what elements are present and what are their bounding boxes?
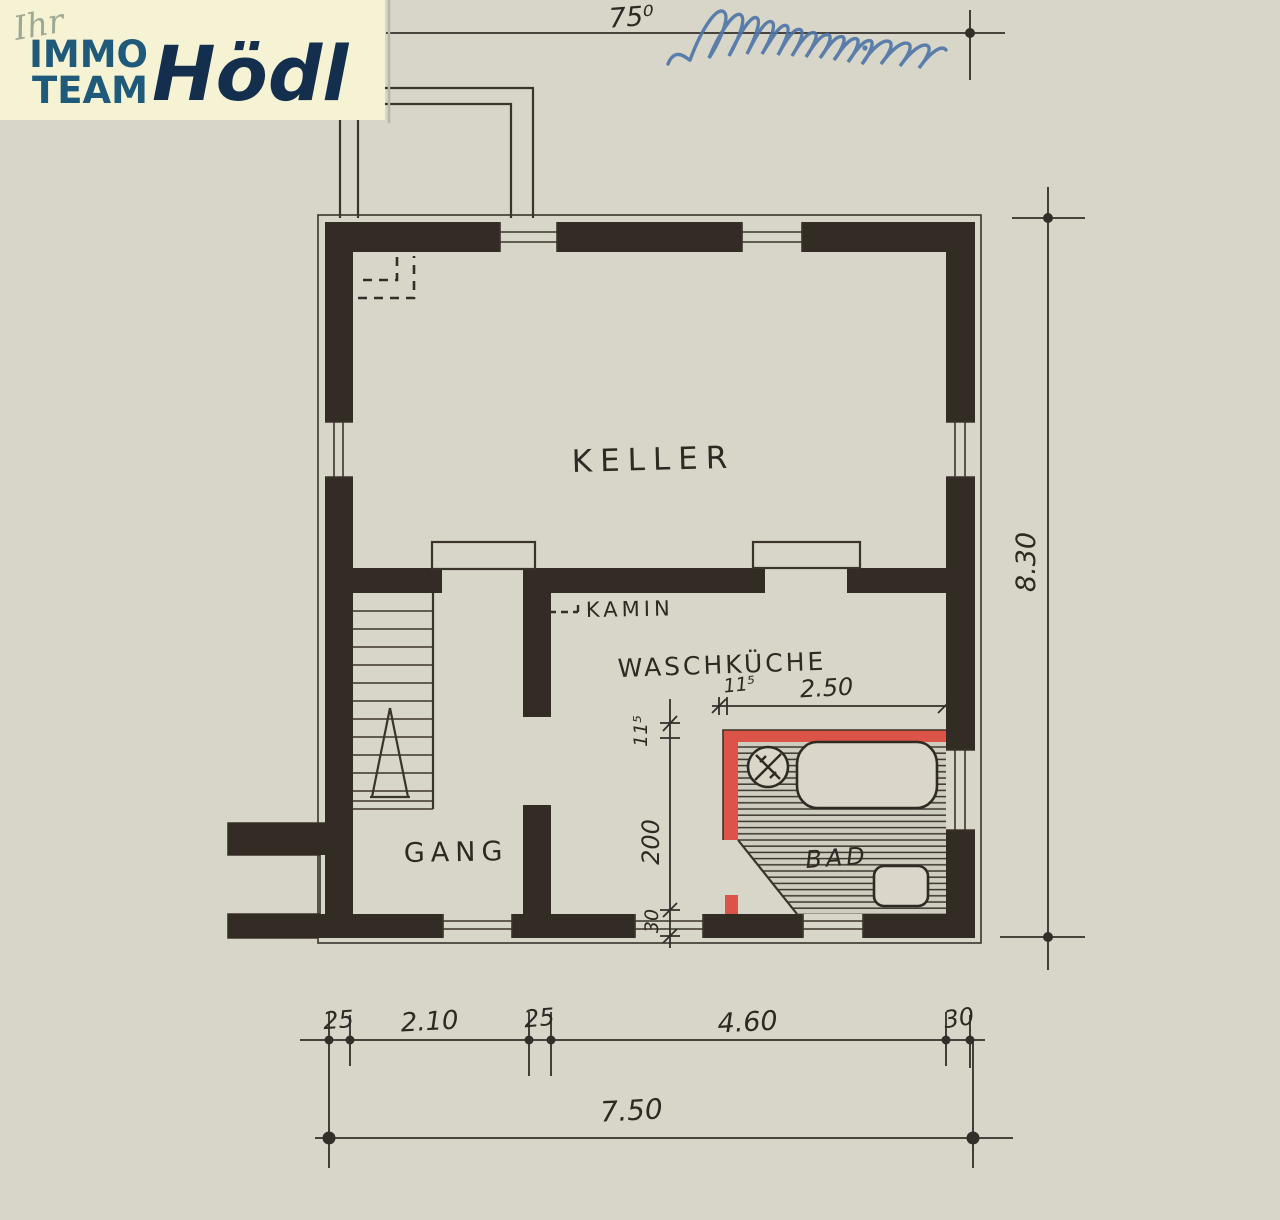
bath-width-dimension-label: 2.50 bbox=[799, 673, 854, 704]
room-label-kamin: KAMIN bbox=[586, 596, 674, 622]
chain-dimension-label: 25 bbox=[322, 1005, 354, 1035]
bath-wall-dimension-label: 11⁵ bbox=[722, 672, 756, 697]
chain-dimension-label: 25 bbox=[523, 1003, 556, 1034]
right-total-dimension-label: 8.30 bbox=[1011, 532, 1042, 592]
logo-line2: TEAM bbox=[32, 69, 148, 112]
exterior-entry-wall-stub bbox=[228, 823, 325, 855]
room-label-keller: KELLER bbox=[571, 440, 735, 480]
bathroom-sink bbox=[874, 866, 928, 906]
interior-wall-segment bbox=[523, 805, 551, 914]
interior-wall-segment bbox=[353, 568, 442, 593]
bathtub bbox=[797, 742, 937, 808]
interior-wall-segment bbox=[847, 568, 946, 593]
bathroom-wall-red-top bbox=[735, 730, 946, 742]
bath-depth-dimension-label: 200 bbox=[637, 819, 665, 865]
bottom-wall-segment bbox=[703, 914, 803, 938]
ink-dot bbox=[862, 45, 867, 50]
bottom-wall-dimension-label: 30 bbox=[641, 909, 663, 933]
right-wall-segment bbox=[946, 222, 975, 422]
bath-wall-vertical-dimension-label: 11⁵ bbox=[630, 715, 652, 747]
left-wall-segment bbox=[325, 222, 353, 422]
room-label-gang: GANG bbox=[404, 836, 509, 869]
immo-team-hoedl-logo: Ihr IMMO TEAM Hödl bbox=[0, 0, 389, 123]
chain-dimension-label: 30 bbox=[942, 1002, 976, 1034]
top-dimension-end-dot bbox=[965, 28, 975, 38]
bottom-wall-segment bbox=[228, 914, 443, 938]
logo-brand-name: Hödl bbox=[152, 29, 349, 118]
interior-wall-segment bbox=[523, 593, 551, 717]
room-label-bad: BAD bbox=[804, 842, 869, 874]
bottom-wall-segment bbox=[512, 914, 635, 938]
bottom-wall-segment bbox=[863, 914, 975, 938]
bathroom-wall-red-left bbox=[723, 730, 738, 840]
floorplan-drawing: 75⁰ bbox=[0, 0, 1280, 1220]
chain-dimension-label: 4.60 bbox=[717, 1005, 779, 1039]
interior-wall-segment bbox=[523, 568, 765, 593]
floorplan-scan: 75⁰ bbox=[0, 0, 1280, 1220]
chain-dimension-label: 2.10 bbox=[400, 1006, 459, 1039]
bathroom-wall-red-bottom bbox=[725, 895, 738, 914]
left-wall-segment bbox=[325, 477, 353, 938]
bottom-total-dimension-label: 7.50 bbox=[600, 1092, 664, 1128]
top-total-dimension-label: 75⁰ bbox=[608, 0, 655, 34]
top-wall-segment bbox=[557, 222, 742, 252]
right-wall-segment bbox=[946, 477, 975, 750]
